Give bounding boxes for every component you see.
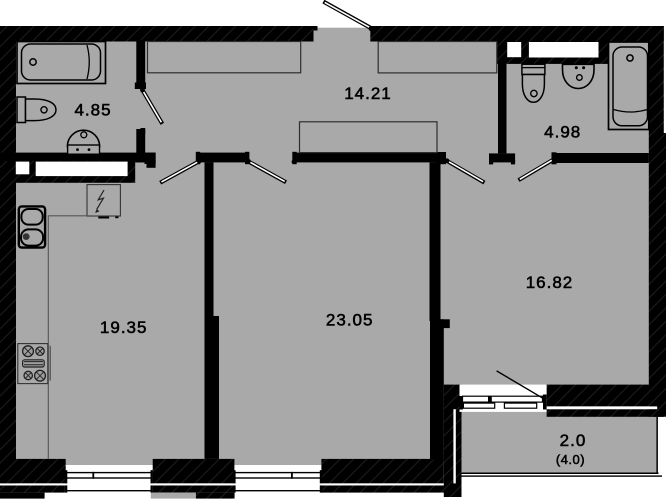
svg-text:2.0: 2.0 xyxy=(560,431,587,450)
svg-text:16.82: 16.82 xyxy=(526,273,574,292)
svg-text:4.98: 4.98 xyxy=(544,123,581,142)
svg-text:19.35: 19.35 xyxy=(100,318,148,337)
svg-text:4.85: 4.85 xyxy=(74,101,111,120)
svg-text:23.05: 23.05 xyxy=(326,311,374,330)
svg-text:(4.0): (4.0) xyxy=(556,452,585,467)
svg-text:14.21: 14.21 xyxy=(344,84,392,103)
